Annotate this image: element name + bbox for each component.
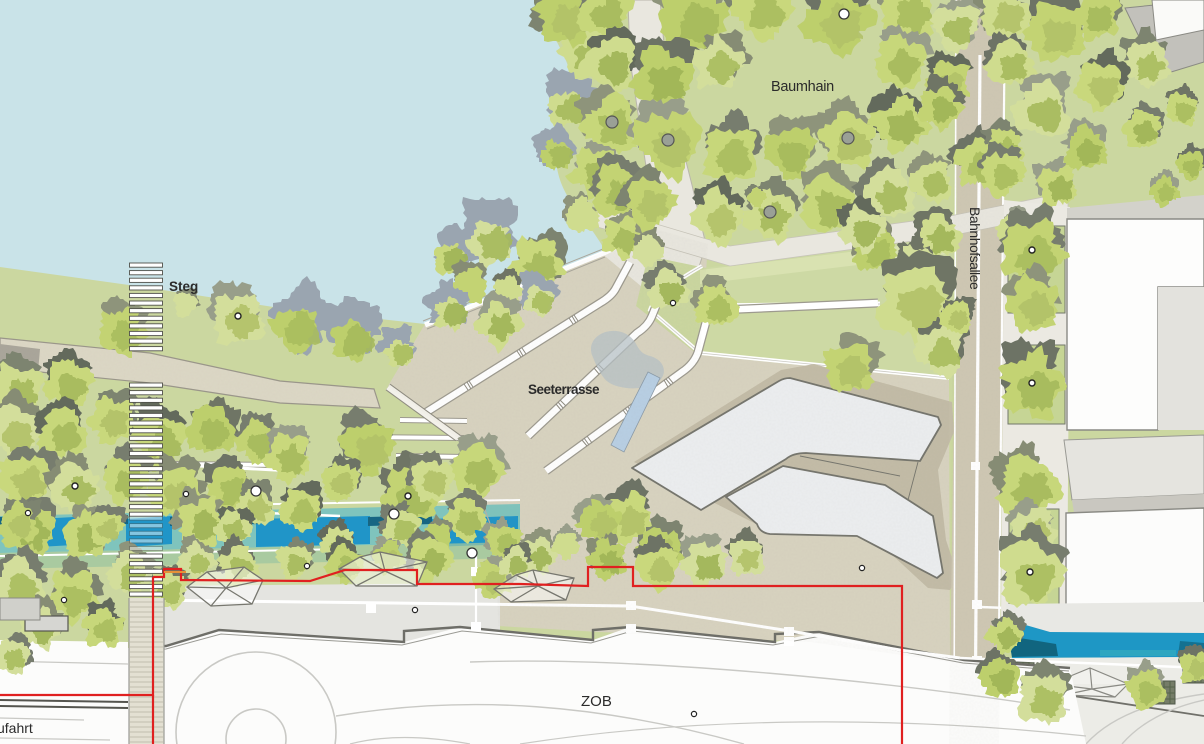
svg-text:Seeterrasse: Seeterrasse xyxy=(528,382,600,397)
svg-text:Steg: Steg xyxy=(169,279,198,294)
svg-text:Baumhain: Baumhain xyxy=(771,79,834,95)
svg-text:ZOB: ZOB xyxy=(581,693,612,710)
svg-text:ufahrt: ufahrt xyxy=(0,720,33,736)
svg-text:Bahnhofsallee: Bahnhofsallee xyxy=(967,207,983,290)
